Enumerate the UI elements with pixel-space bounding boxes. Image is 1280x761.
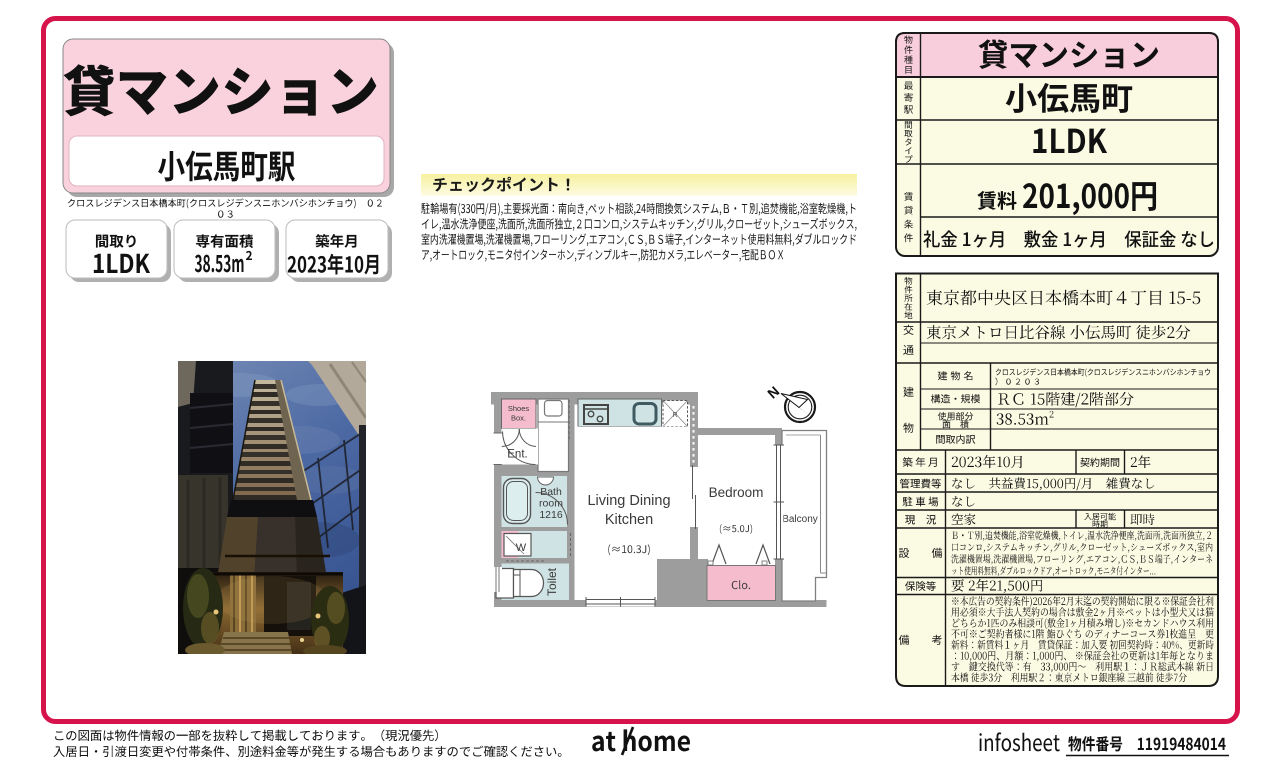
svg-text:Kitchen: Kitchen <box>605 512 653 528</box>
svg-text:Living Dining: Living Dining <box>587 493 670 509</box>
svg-text:room: room <box>539 498 563 510</box>
svg-text:Shoes: Shoes <box>508 404 530 413</box>
svg-text:Toilet: Toilet <box>545 567 559 596</box>
svg-text:Box.: Box. <box>511 414 526 423</box>
svg-text:Bedroom: Bedroom <box>709 485 764 500</box>
svg-text:1216: 1216 <box>539 509 563 521</box>
svg-text:W: W <box>516 542 527 554</box>
svg-text:Bath: Bath <box>540 486 562 498</box>
svg-text:R: R <box>672 412 677 419</box>
svg-text:Ent.: Ent. <box>507 449 527 461</box>
svg-text:Balcony: Balcony <box>782 514 818 525</box>
